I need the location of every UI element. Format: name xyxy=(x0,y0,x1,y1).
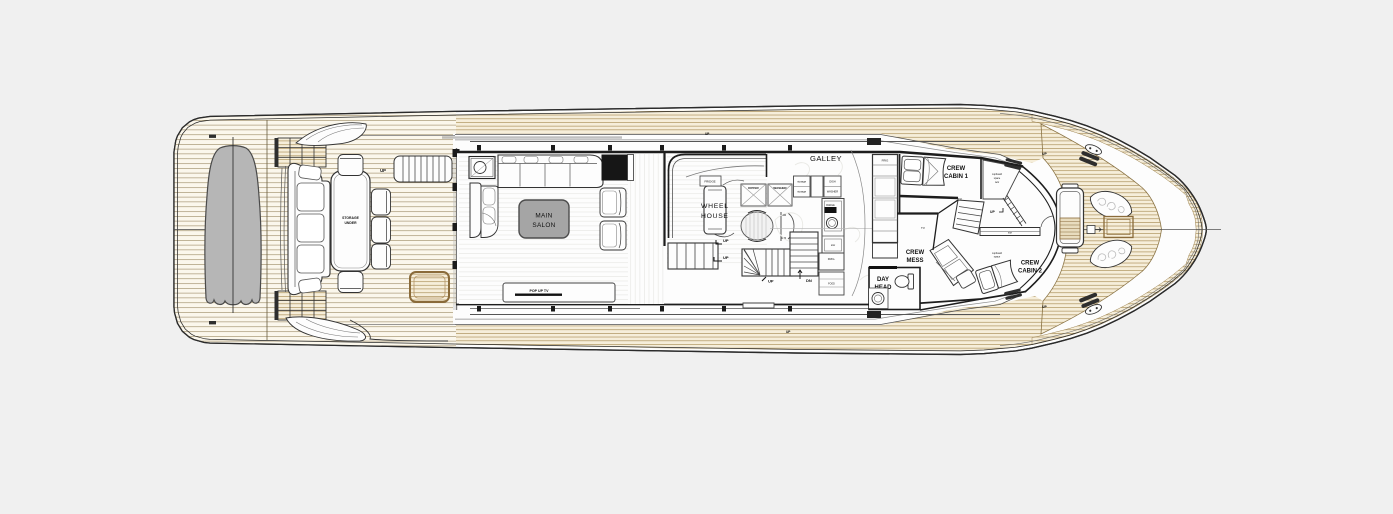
svg-text:FOOD: FOOD xyxy=(828,284,835,286)
svg-text:FRIG: FRIG xyxy=(882,159,889,163)
svg-text:UP: UP xyxy=(380,168,386,173)
svg-text:DRYER: DRYER xyxy=(748,186,759,190)
svg-text:w/w: w/w xyxy=(995,181,999,184)
svg-text:GALLEY: GALLEY xyxy=(810,154,842,163)
svg-text:CREW: CREW xyxy=(906,250,925,256)
svg-text:UP: UP xyxy=(1042,152,1047,156)
svg-text:TV: TV xyxy=(921,226,925,230)
svg-text:UNDER: UNDER xyxy=(344,221,357,225)
svg-text:stor: stor xyxy=(831,243,835,247)
svg-text:CABIN 2: CABIN 2 xyxy=(1018,269,1043,275)
svg-text:UP: UP xyxy=(768,279,774,284)
svg-text:DN: DN xyxy=(806,278,812,283)
svg-text:MAIN: MAIN xyxy=(535,213,552,220)
svg-text:SALON: SALON xyxy=(532,222,555,229)
svg-text:MESS: MESS xyxy=(906,258,923,264)
svg-text:FRIG.: FRIG. xyxy=(828,257,836,261)
svg-text:UP: UP xyxy=(1042,305,1047,309)
svg-text:stor: stor xyxy=(1008,232,1012,235)
svg-text:WASHER: WASHER xyxy=(827,190,838,194)
svg-text:CABIN 1: CABIN 1 xyxy=(944,174,969,180)
svg-text:UP: UP xyxy=(990,210,995,214)
svg-text:POP UP TV: POP UP TV xyxy=(529,289,549,293)
svg-text:HOUSE: HOUSE xyxy=(701,213,729,220)
svg-text:space: space xyxy=(994,177,1001,180)
svg-text:WHEEL: WHEEL xyxy=(701,203,729,210)
svg-text:UP: UP xyxy=(723,238,729,243)
svg-text:storage: storage xyxy=(797,180,806,184)
svg-text:UP: UP xyxy=(723,255,729,260)
svg-text:FRIDGE: FRIDGE xyxy=(704,180,715,184)
svg-text:STORAGE: STORAGE xyxy=(342,216,359,220)
svg-text:space: space xyxy=(994,256,1001,259)
svg-text:storage: storage xyxy=(797,190,806,194)
svg-text:DAY: DAY xyxy=(877,277,889,283)
svg-text:TV: TV xyxy=(958,197,962,201)
svg-text:cupboard: cupboard xyxy=(992,173,1003,176)
svg-text:RANGE: RANGE xyxy=(826,204,835,207)
svg-text:CREW: CREW xyxy=(1021,261,1040,267)
svg-text:WASHER: WASHER xyxy=(773,186,787,190)
svg-text:CREW: CREW xyxy=(947,166,966,172)
svg-text:DISH: DISH xyxy=(829,180,835,184)
